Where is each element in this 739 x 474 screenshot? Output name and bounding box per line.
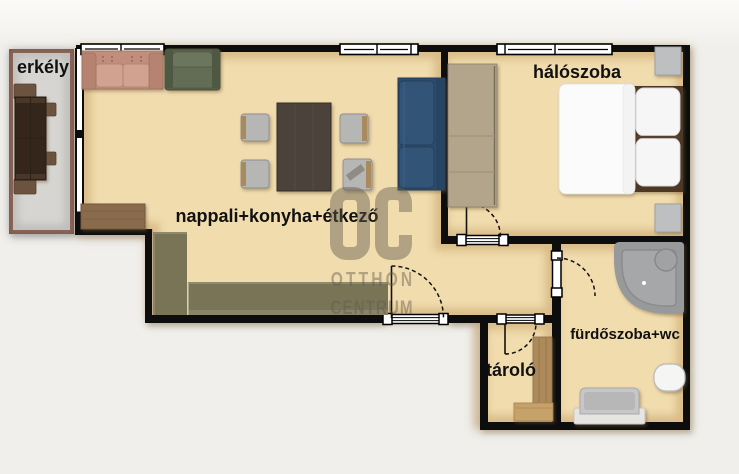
svg-text:hálószoba: hálószoba (533, 62, 622, 82)
svg-text:nappali+konyha+étkező: nappali+konyha+étkező (175, 206, 378, 226)
svg-text:fürdőszoba+wc: fürdőszoba+wc (570, 326, 680, 343)
svg-text:OTTHON: OTTHON (331, 268, 416, 290)
svg-text:tároló: tároló (486, 360, 536, 380)
svg-text:CENTRUM: CENTRUM (330, 296, 413, 318)
svg-text:erkély: erkély (17, 57, 69, 77)
